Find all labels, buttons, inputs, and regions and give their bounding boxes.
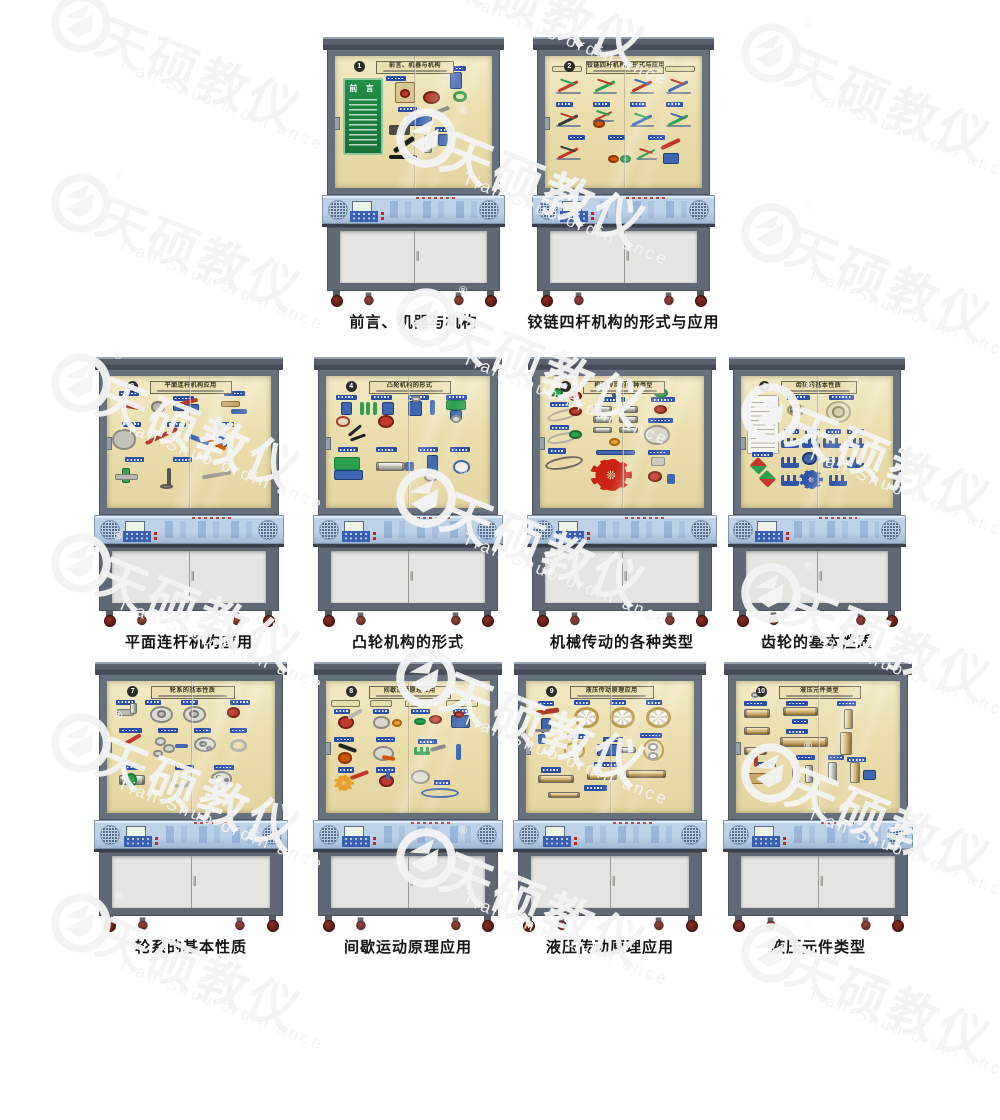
display-case: 9 液压传动原理应用 [518,674,702,820]
registered-mark: ® [804,200,812,212]
exhibit-number-badge: 3 [127,381,138,392]
exhibit-shape [230,739,246,752]
exhibit-shape [411,396,421,402]
exhibit-label-strip [215,422,234,427]
exhibit-shape [744,747,766,755]
exhibit-shape [151,401,165,413]
caster-wheel [765,917,775,928]
exhibit-label-strip [640,733,663,738]
exhibit-shape [392,719,402,727]
exhibit-shape [663,153,678,165]
exhibit-shape [648,743,658,751]
display-case: 6 齿轮的基本性质 [733,369,901,515]
exhibit-label-strip [648,418,674,423]
speaker-grille-right [691,520,711,540]
exhibit-shape [231,409,247,414]
exhibit-shape [648,471,662,481]
exhibit-shape [823,438,841,448]
exhibit-shape [590,459,632,491]
exhibit-shape [781,438,799,448]
door-handle [612,876,615,886]
exhibit-label-strip [826,429,841,434]
exhibit-shape [666,112,690,127]
caster-wheel [481,916,494,930]
caster-wheel [732,916,745,930]
caster-wheel [137,917,147,928]
speaker-grille-left [319,825,339,845]
exhibit-shape [407,114,431,126]
door-divider [408,551,409,603]
exhibit-label-strip [418,739,437,744]
keypad-buttons [342,836,370,847]
glass-lock-handle [107,742,112,755]
exhibit-shape [336,416,350,426]
panel-diagrams [794,826,884,843]
keypad-buttons [124,836,152,847]
exhibit-shape [744,709,770,718]
caster-wheel [484,291,497,305]
caster-wheel [231,612,241,623]
exhibit-shape [620,747,636,753]
exhibit-shape [393,136,416,154]
door-divider [191,856,192,908]
glass-lock-handle [736,742,741,755]
display-cabinet-5: 5 机械传动的各种类型 [532,357,712,625]
exhibit-shape [536,707,559,715]
exhibit-shape [792,765,800,783]
exhibit-shape [376,462,405,471]
door-handle [626,251,629,261]
glass-lock-handle [540,437,545,450]
exhibit-shape [171,774,191,788]
display-cabinet-10: 10 液压元件类型 [728,662,908,930]
glass-lock-handle [107,437,112,450]
glass-divider [817,376,819,508]
watermark: ® 天硕教仪 Tian Shuo ordin ance [738,20,1000,220]
caster-wheel [540,291,553,305]
glass-lock-handle [526,742,531,755]
lower-cabinet [537,227,710,291]
exhibit-shape [173,404,199,412]
glass-window: 前 言 1 前言、机器与机构 [335,56,492,188]
exhibit-shape [790,407,802,412]
exhibit-label-strip [610,700,626,705]
exhibit-label-strip [435,127,453,132]
display-cabinet-7: 7 轮系的基本性质 [99,662,283,930]
glass-divider [408,681,410,813]
exhibit-label-strip [828,755,844,760]
speaker-grille-right [881,520,901,540]
display-case: 2 铰链四杆机构的形式与应用 [537,49,710,195]
caster-wheel [262,611,275,625]
display-cabinet-8: 8 间歇运动原理应用 [318,662,498,930]
exhibit-shape [823,457,841,467]
exhibit-shape [430,744,446,752]
display-cabinet-6: 6 齿轮的基本性质 [733,357,901,625]
cabinet-caption: 铰链四杆机构的形式与应用 [525,311,722,332]
exhibit-label-strip [538,701,554,706]
exhibit-label-strip [376,447,397,452]
exhibit-label-strip [630,102,647,107]
panel-diagrams [384,521,474,538]
exhibit-label-strip [608,135,625,140]
exhibit-label-strip [847,429,865,434]
display-cabinet-9: 9 液压传动原理应用 [518,662,702,930]
keypad-buttons [543,836,571,847]
exhibit-shape [421,788,459,798]
lower-cabinet [518,852,702,916]
exhibit-shape [654,405,667,414]
cabinet-doors [531,856,689,908]
lower-cabinet [733,547,901,611]
exhibit-shape [593,109,614,122]
control-panel [728,515,906,544]
exhibit-shape [430,400,435,415]
exhibit-shape [564,742,585,759]
exhibit-shape [548,792,581,798]
exhibit-shape [636,148,657,161]
exhibit-label-strip [230,700,250,705]
exhibit-shape [535,729,551,732]
exhibit-shape [574,707,599,727]
control-panel [94,820,288,849]
caster-wheel [891,916,904,930]
catalog-canvas: 前 言 1 前言、机器与机构 [0,0,1000,1000]
exhibit-shape [453,91,467,101]
exhibit-shape [408,401,422,416]
exhibit-shape [863,770,876,780]
glass-divider [408,376,410,508]
exhibit-label-strip [373,709,389,714]
exhibit-shape [341,402,352,415]
exhibit-shape [802,452,817,465]
preface-board: 前 言 [343,78,383,155]
door-handle [191,571,194,581]
exhibit-shape [556,78,580,93]
exhibit-label-strip [837,701,856,706]
exhibit-shape [411,770,430,784]
exhibit-shape [850,762,860,782]
exhibit-shape [453,460,471,474]
control-panel [723,820,913,849]
cabinet-doors [112,856,270,908]
keypad-buttons [752,836,780,847]
exhibit-shape [157,710,167,718]
display-case: 前 言 1 前言、机器与机构 [327,49,500,195]
glass-divider [189,376,191,508]
exhibit-shape [331,700,360,706]
speaker-grille-left [733,520,753,540]
exhibit-shape [646,707,671,727]
exhibit-shape [414,747,430,755]
exhibit-shape [423,91,440,104]
exhibit-shape [122,402,145,411]
exhibit-shape [160,484,173,489]
exhibit-label-strip [334,737,353,742]
door-divider [610,856,611,908]
exhibit-shape [112,429,136,449]
exhibit-shape [338,743,357,753]
exhibit-shape [145,427,179,445]
exhibit-label-strip [541,767,561,772]
exhibit-shape [556,112,580,127]
exhibit-shape [847,438,865,448]
caster-wheel [536,611,549,625]
speaker-grille-left [538,200,558,220]
exhibit-shape [747,395,778,454]
glass-lock-handle [545,117,550,130]
exhibit-label-strip [338,447,359,452]
exhibit-label-strip [119,728,142,733]
exhibit-shape [593,406,612,412]
speaker-grille-left [533,520,553,540]
cabinet-caption: 液压元件类型 [716,936,920,957]
watermark-brand-en: Tian Shuo ordin ance [115,234,327,335]
exhibit-shape [596,450,634,455]
cabinet-doors [331,856,485,908]
exhibit-label-strip [122,422,141,427]
glass-lock-handle [326,742,331,755]
exhibit-shape [224,778,229,782]
exhibit-shape [544,454,584,472]
exhibit-shape [840,732,851,755]
exhibit-label-strip [230,728,246,733]
caster-wheel [355,612,365,623]
exhibit-shape [429,715,442,724]
exhibit-label-strip [792,719,808,724]
door-divider [818,856,819,908]
lower-cabinet [532,547,712,611]
caster-wheel [573,292,583,303]
lower-cabinet [99,547,279,611]
glass-window: 7 轮系的基本性质 [107,681,275,813]
exhibit-shape [456,744,461,759]
caster-wheel [695,611,708,625]
exhibit-label-strip [434,780,450,785]
lower-cabinet [99,852,283,916]
exhibit-shape [153,750,163,758]
exhibit-shape [424,135,432,153]
exhibit-shape [587,773,617,781]
door-handle [410,876,413,886]
exhibit-label-strip [786,701,808,706]
watermark: ® 天硕教仪 Tian Shuo ordin ance [738,0,1000,40]
registered-mark: ® [114,170,122,182]
exhibit-label-strip [829,395,854,400]
door-divider [817,551,818,603]
caster-wheel [235,917,245,928]
caster-wheel [363,292,373,303]
exhibit-shape [780,737,828,747]
speaker-grille-right [689,200,709,220]
exhibit-shape [783,707,818,716]
display-cabinet-1: 前 言 1 前言、机器与机构 [327,37,500,305]
exhibit-shape [400,89,411,98]
door-handle [624,571,627,581]
speaker-grille-right [681,825,701,845]
exhibit-label-strip [603,737,623,742]
speaker-grille-right [477,520,497,540]
cabinet-doors [331,551,485,603]
exhibit-shape [227,707,240,717]
cabinet-caption: 凸轮机构的形式 [306,631,510,652]
exhibit-number-badge: 5 [560,381,571,392]
watermark-brand-en: Tian Shuo ordin ance [115,54,327,155]
panel-diagrams [794,521,879,538]
exhibit-shape [175,744,188,748]
panel-diagrams [165,521,255,538]
caster-wheel [736,611,749,625]
exhibit-label-strip [646,700,662,705]
door-handle [819,571,822,581]
watermark-brand-cn: 天硕教仪 [777,28,1000,176]
exhibit-shape [382,402,393,415]
exhibit-shape [373,716,391,729]
glass-window: 2 铰链四杆机构的形式与应用 [545,56,702,188]
caster-wheel [664,292,674,303]
glass-window: 8 间歇运动原理应用 [326,681,490,813]
speaker-grille-left [328,200,348,220]
exhibit-shape [593,427,612,433]
cabinet-caption: 前言、机器与机构 [315,311,512,332]
exhibit-label-strip [574,700,590,705]
exhibit-label-strip [418,447,439,452]
exhibit-shape [744,727,770,736]
exhibit-shape [593,78,617,93]
speaker-grille-left [319,520,339,540]
panel-diagrams [384,826,474,843]
cabinet-caption: 齿轮的基本性质 [721,631,913,652]
caster-wheel [454,292,464,303]
glass-divider [622,376,624,508]
lower-cabinet [327,227,500,291]
cabinet-doors [545,551,699,603]
speaker-grille-right [262,825,282,845]
lower-cabinet [318,547,498,611]
caster-wheel [266,916,279,930]
cabinet-caption: 机械传动的各种类型 [520,631,724,652]
exhibit-shape [829,475,847,485]
exhibit-shape [626,770,665,778]
exhibit-shape [609,438,620,446]
exhibit-label-strip [125,457,144,462]
watermark-brand-en: Tian Shuo ordin ance [805,84,1000,185]
exhibit-shape [221,401,240,407]
exhibit-shape [593,416,612,422]
exhibit-number-badge: 4 [346,381,357,392]
exhibit-label-strip [584,785,607,790]
caster-wheel [450,612,460,623]
exhibit-shape [610,707,635,727]
control-panel [322,195,505,224]
caster-wheel [481,611,494,625]
glass-window: 4 凸轮机构的形式 [326,376,490,508]
exhibit-shape [427,455,438,473]
panel-diagrams [390,201,477,218]
glass-window: 3 平面连杆机构应用 [107,376,271,508]
preface-board-textlines [349,99,376,149]
exhibit-label-strip [744,701,766,706]
glass-window: 10 液压元件类型 [736,681,900,813]
exhibit-label-strip [167,422,186,427]
speaker-grille-left [729,825,749,845]
exhibit-shape [206,746,213,751]
exhibit-label-strip [450,447,471,452]
exhibit-label-strip [376,737,395,742]
exhibit-shape [373,402,377,415]
exhibit-shape [115,474,137,480]
exhibit-shape [389,125,410,135]
exhibit-shape [125,773,136,787]
exhibit-shape [130,703,137,713]
glass-window: 9 液压传动原理应用 [526,681,694,813]
glass-divider [610,681,612,813]
door-handle [193,876,196,886]
exhibit-label-strip [336,395,357,400]
exhibit-shape [122,733,141,746]
exhibit-shape [660,138,681,151]
caster-wheel [556,917,566,928]
display-case: 10 液压元件类型 [728,674,908,820]
glass-divider [191,681,193,813]
caster-wheel [569,612,579,623]
display-case: 4 凸轮机构的形式 [318,369,498,515]
exhibit-label-strip [550,425,569,430]
watermark-brand-cn: 天硕教仪 [87,0,314,146]
exhibit-shape [667,474,675,484]
glass-divider [818,681,820,813]
door-divider [414,231,415,283]
watermark: ® 天硕教仪 Tian Shuo ordin ance [48,0,388,10]
exhibit-shape [597,744,620,756]
panel-diagrams [585,826,677,843]
exhibit-label-strip [371,395,392,400]
glass-divider [414,56,416,188]
speaker-grille-right [479,200,499,220]
exhibit-shape [366,402,370,415]
keypad-buttons [342,531,370,542]
keypad-buttons [560,211,588,222]
door-divider [189,551,190,603]
exhibit-shape [651,457,665,466]
door-handle [410,571,413,581]
exhibit-label-strip [125,765,141,770]
speaker-grille-left [519,825,539,845]
exhibit-label-strip [567,734,590,739]
exhibit-shape [781,457,799,467]
exhibit-label-strip [784,429,799,434]
caster-wheel [885,611,898,625]
exhibit-shape [569,430,582,439]
exhibit-shape [389,155,417,159]
panel-diagrams [598,521,688,538]
glass-divider [624,56,626,188]
exhibit-label-strip [550,402,569,407]
display-case: 5 机械传动的各种类型 [532,369,712,515]
exhibit-label-strip [338,767,354,772]
caster-wheel [860,917,870,928]
watermark-brand-cn: 天硕教仪 [777,208,1000,356]
keypad-buttons [556,531,584,542]
caster-wheel [856,612,866,623]
door-divider [624,231,625,283]
exhibit-shape [644,425,670,444]
exhibit-shape [754,755,758,768]
display-case: 7 轮系的基本性质 [99,674,283,820]
glass-lock-handle [335,117,340,130]
cabinet-caption: 液压传动原理应用 [506,936,714,957]
glass-lock-handle [326,437,331,450]
